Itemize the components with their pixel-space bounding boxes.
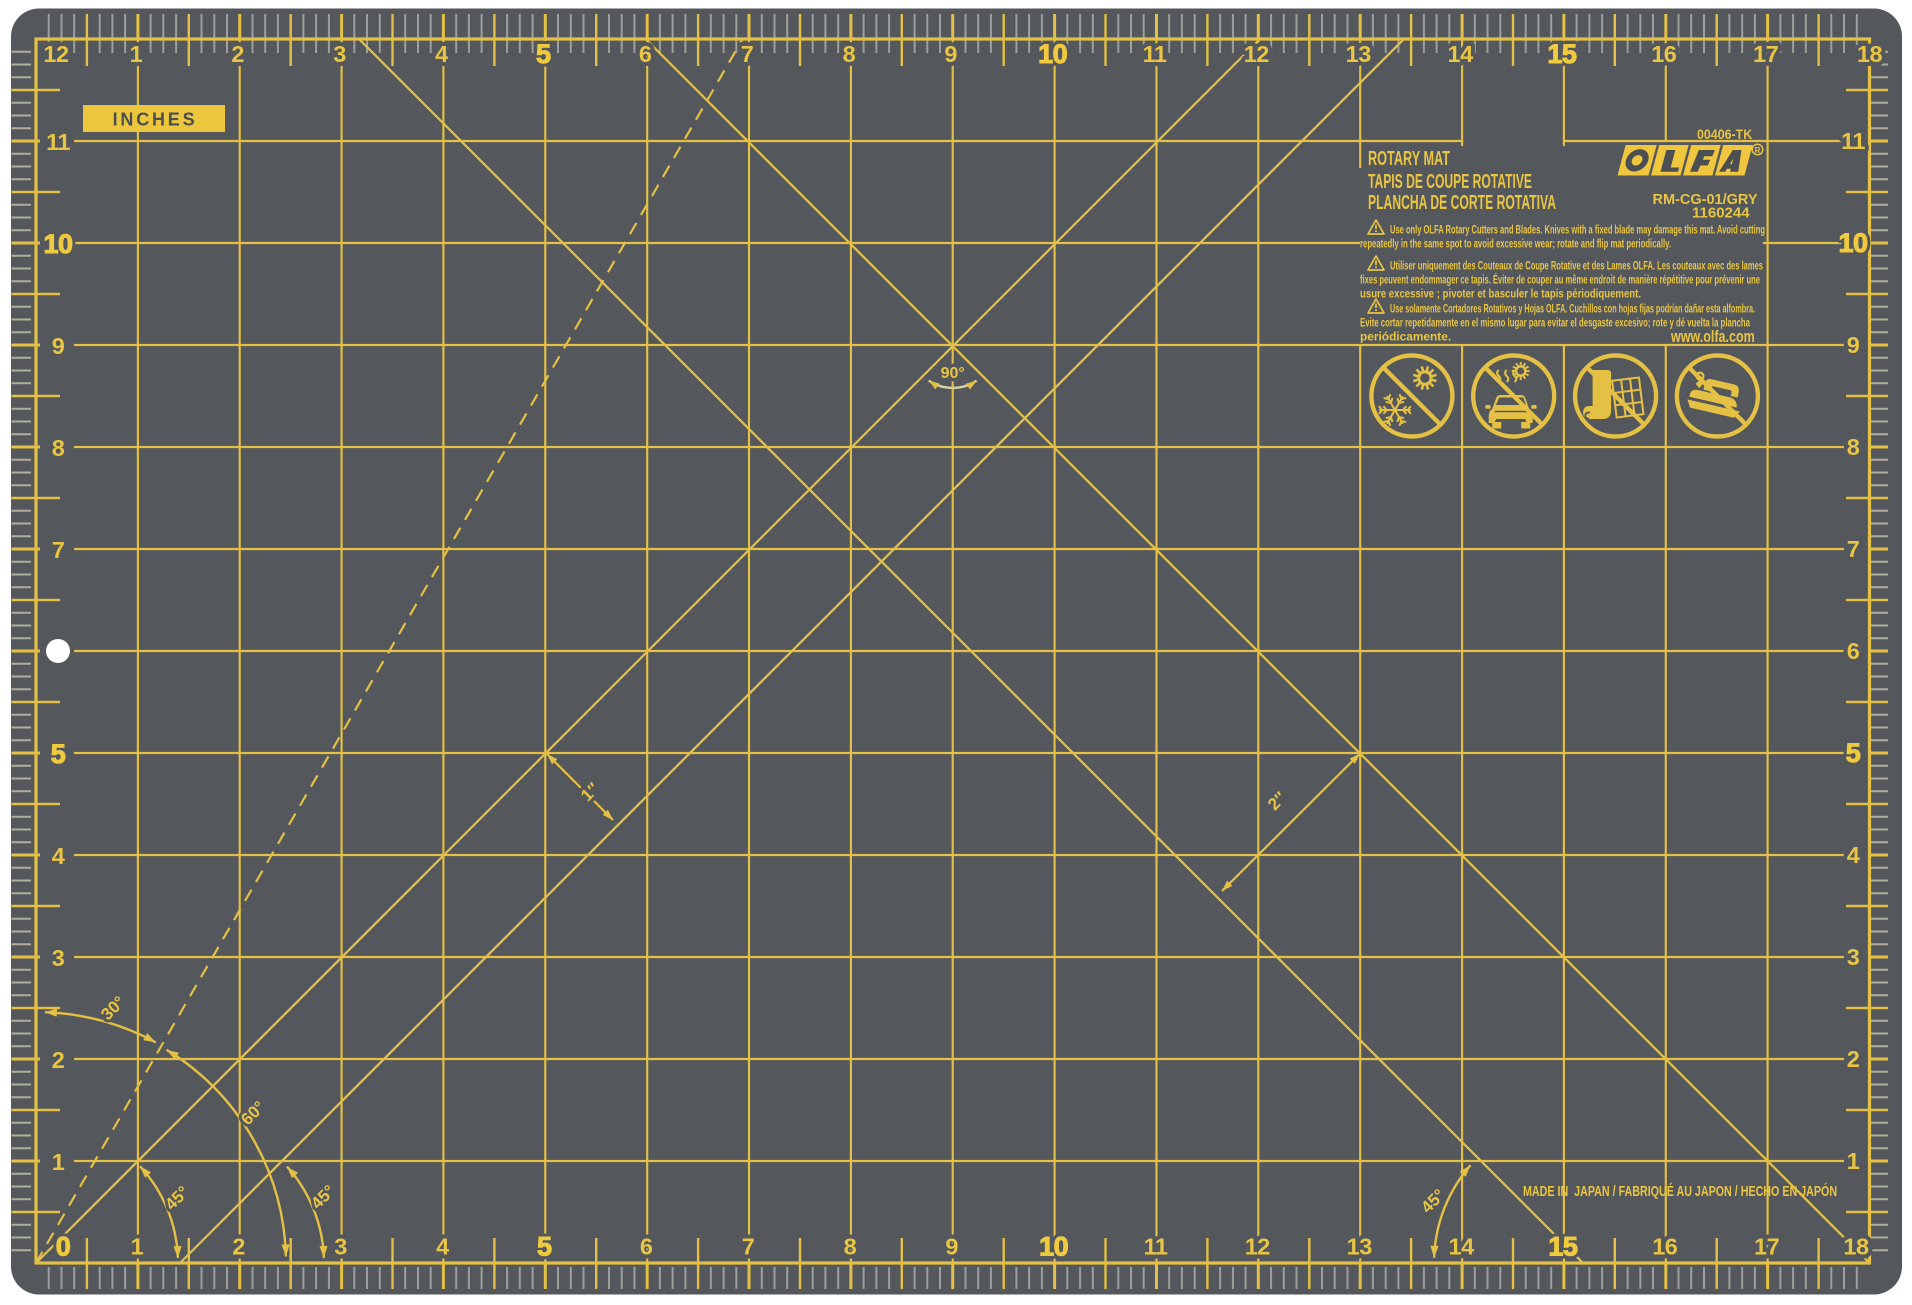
svg-text:10: 10 <box>1039 1232 1068 1262</box>
svg-text:6: 6 <box>639 41 652 67</box>
svg-text:8: 8 <box>844 1234 857 1260</box>
svg-text:1: 1 <box>1847 1148 1860 1174</box>
svg-text:3: 3 <box>52 945 65 971</box>
svg-text:1160244: 1160244 <box>1692 205 1750 222</box>
svg-text:Utiliser uniquement des Coutea: Utiliser uniquement des Couteaux de Coup… <box>1390 259 1763 273</box>
svg-text:usure excessive ; pivoter et b: usure excessive ; pivoter et basculer le… <box>1360 287 1641 301</box>
svg-text:11: 11 <box>1841 128 1865 154</box>
svg-text:2: 2 <box>1847 1046 1860 1072</box>
svg-text:repeatedly in the same spot to: repeatedly in the same spot to avoid exc… <box>1360 237 1671 251</box>
svg-text:periódicamente.: periódicamente. <box>1360 330 1451 344</box>
svg-text:4: 4 <box>52 843 65 869</box>
svg-text:16: 16 <box>1651 41 1677 67</box>
svg-text:17: 17 <box>1753 41 1779 67</box>
svg-text:12: 12 <box>43 41 69 67</box>
svg-text:INCHES: INCHES <box>113 110 198 130</box>
svg-text:TAPIS DE COUPE ROTATIVE: TAPIS DE COUPE ROTATIVE <box>1368 170 1532 193</box>
svg-text:Use only OLFA Rotary Cutters a: Use only OLFA Rotary Cutters and Blades.… <box>1390 223 1765 237</box>
svg-text:PLANCHA DE CORTE ROTATIVA: PLANCHA DE CORTE ROTATIVA <box>1368 191 1556 214</box>
svg-text:0: 0 <box>56 1232 71 1262</box>
svg-text:8: 8 <box>52 435 65 461</box>
svg-text:7: 7 <box>741 41 754 67</box>
svg-text:R: R <box>1755 146 1761 155</box>
svg-text:1: 1 <box>130 41 143 67</box>
svg-text:9: 9 <box>944 41 957 67</box>
svg-text:4: 4 <box>436 1234 449 1260</box>
svg-text:18: 18 <box>1843 1234 1869 1260</box>
svg-text:5: 5 <box>536 39 551 69</box>
svg-text:13: 13 <box>1346 41 1372 67</box>
svg-text:14: 14 <box>1449 1234 1475 1260</box>
svg-text:8: 8 <box>1847 434 1860 460</box>
svg-text:3: 3 <box>1847 944 1860 970</box>
svg-text:7: 7 <box>52 537 65 563</box>
svg-text:5: 5 <box>51 739 66 769</box>
svg-text:Use solamente Cortadores Rotat: Use solamente Cortadores Rotativos y Hoj… <box>1390 302 1755 316</box>
svg-text:MADE IN JAPAN / FABRIQUÉ AU J: MADE IN JAPAN / FABRIQUÉ AU JAPON / HECH… <box>1523 1182 1837 1199</box>
svg-text:5: 5 <box>1846 738 1861 768</box>
svg-text:15: 15 <box>1548 1232 1578 1262</box>
svg-text:2: 2 <box>232 1234 245 1260</box>
svg-text:12: 12 <box>1244 41 1270 67</box>
svg-text:3: 3 <box>333 41 346 67</box>
svg-text:8: 8 <box>843 41 856 67</box>
svg-text:3: 3 <box>334 1234 347 1260</box>
svg-text:2: 2 <box>52 1047 65 1073</box>
svg-text:11: 11 <box>46 129 70 155</box>
svg-text:6: 6 <box>640 1234 653 1260</box>
svg-text:15: 15 <box>1547 39 1577 69</box>
svg-text:Evite cortar repetidamente en: Evite cortar repetidamente en el mismo l… <box>1360 316 1750 330</box>
svg-text:12: 12 <box>1245 1234 1271 1260</box>
svg-text:1: 1 <box>131 1234 144 1260</box>
svg-text:9: 9 <box>945 1234 958 1260</box>
svg-text:9: 9 <box>52 333 65 359</box>
svg-text:00406-TK: 00406-TK <box>1697 127 1753 143</box>
svg-text:4: 4 <box>1847 842 1860 868</box>
svg-text:10: 10 <box>43 229 72 259</box>
svg-text:11: 11 <box>1144 1234 1168 1260</box>
svg-text:1: 1 <box>52 1149 65 1175</box>
svg-text:11: 11 <box>1143 41 1167 67</box>
svg-text:5: 5 <box>537 1232 552 1262</box>
svg-text:6: 6 <box>1847 638 1860 664</box>
svg-text:10: 10 <box>1038 39 1067 69</box>
svg-text:16: 16 <box>1652 1234 1678 1260</box>
svg-text:7: 7 <box>742 1234 755 1260</box>
svg-text:2: 2 <box>231 41 244 67</box>
svg-text:17: 17 <box>1754 1234 1780 1260</box>
svg-text:www.olfa.com: www.olfa.com <box>1670 328 1755 346</box>
svg-text:4: 4 <box>435 41 448 67</box>
svg-text:7: 7 <box>1847 536 1860 562</box>
svg-text:10: 10 <box>1838 228 1867 258</box>
svg-text:90°: 90° <box>941 365 965 382</box>
svg-text:fixes peuvent endommager ce ta: fixes peuvent endommager ce tapis. Évite… <box>1360 272 1760 287</box>
svg-text:18: 18 <box>1857 41 1883 67</box>
svg-text:13: 13 <box>1347 1234 1373 1260</box>
svg-text:ROTARY MAT: ROTARY MAT <box>1368 147 1450 170</box>
svg-text:9: 9 <box>1847 332 1860 358</box>
svg-text:14: 14 <box>1448 41 1474 67</box>
